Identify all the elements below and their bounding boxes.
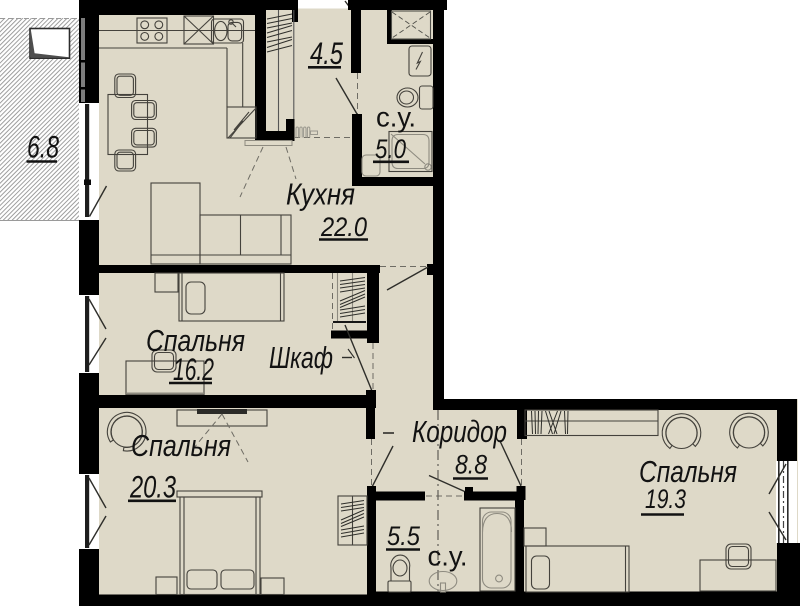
- svg-text:с.у.: с.у.: [428, 541, 468, 572]
- svg-text:8.8: 8.8: [455, 450, 487, 480]
- svg-text:22.0: 22.0: [320, 212, 367, 242]
- svg-text:5.5: 5.5: [387, 521, 421, 551]
- svg-text:с.у.: с.у.: [376, 102, 416, 133]
- svg-text:4.5: 4.5: [310, 35, 343, 71]
- svg-text:Коридор: Коридор: [412, 414, 507, 449]
- svg-text:Шкаф: Шкаф: [269, 340, 333, 375]
- svg-text:Спальня: Спальня: [131, 428, 231, 463]
- svg-text:5.0: 5.0: [375, 134, 406, 164]
- svg-text:19.3: 19.3: [645, 484, 686, 514]
- svg-text:16.2: 16.2: [173, 351, 214, 387]
- svg-text:20.3: 20.3: [129, 469, 176, 505]
- svg-text:6.8: 6.8: [27, 129, 59, 165]
- svg-text:Кухня: Кухня: [286, 177, 355, 212]
